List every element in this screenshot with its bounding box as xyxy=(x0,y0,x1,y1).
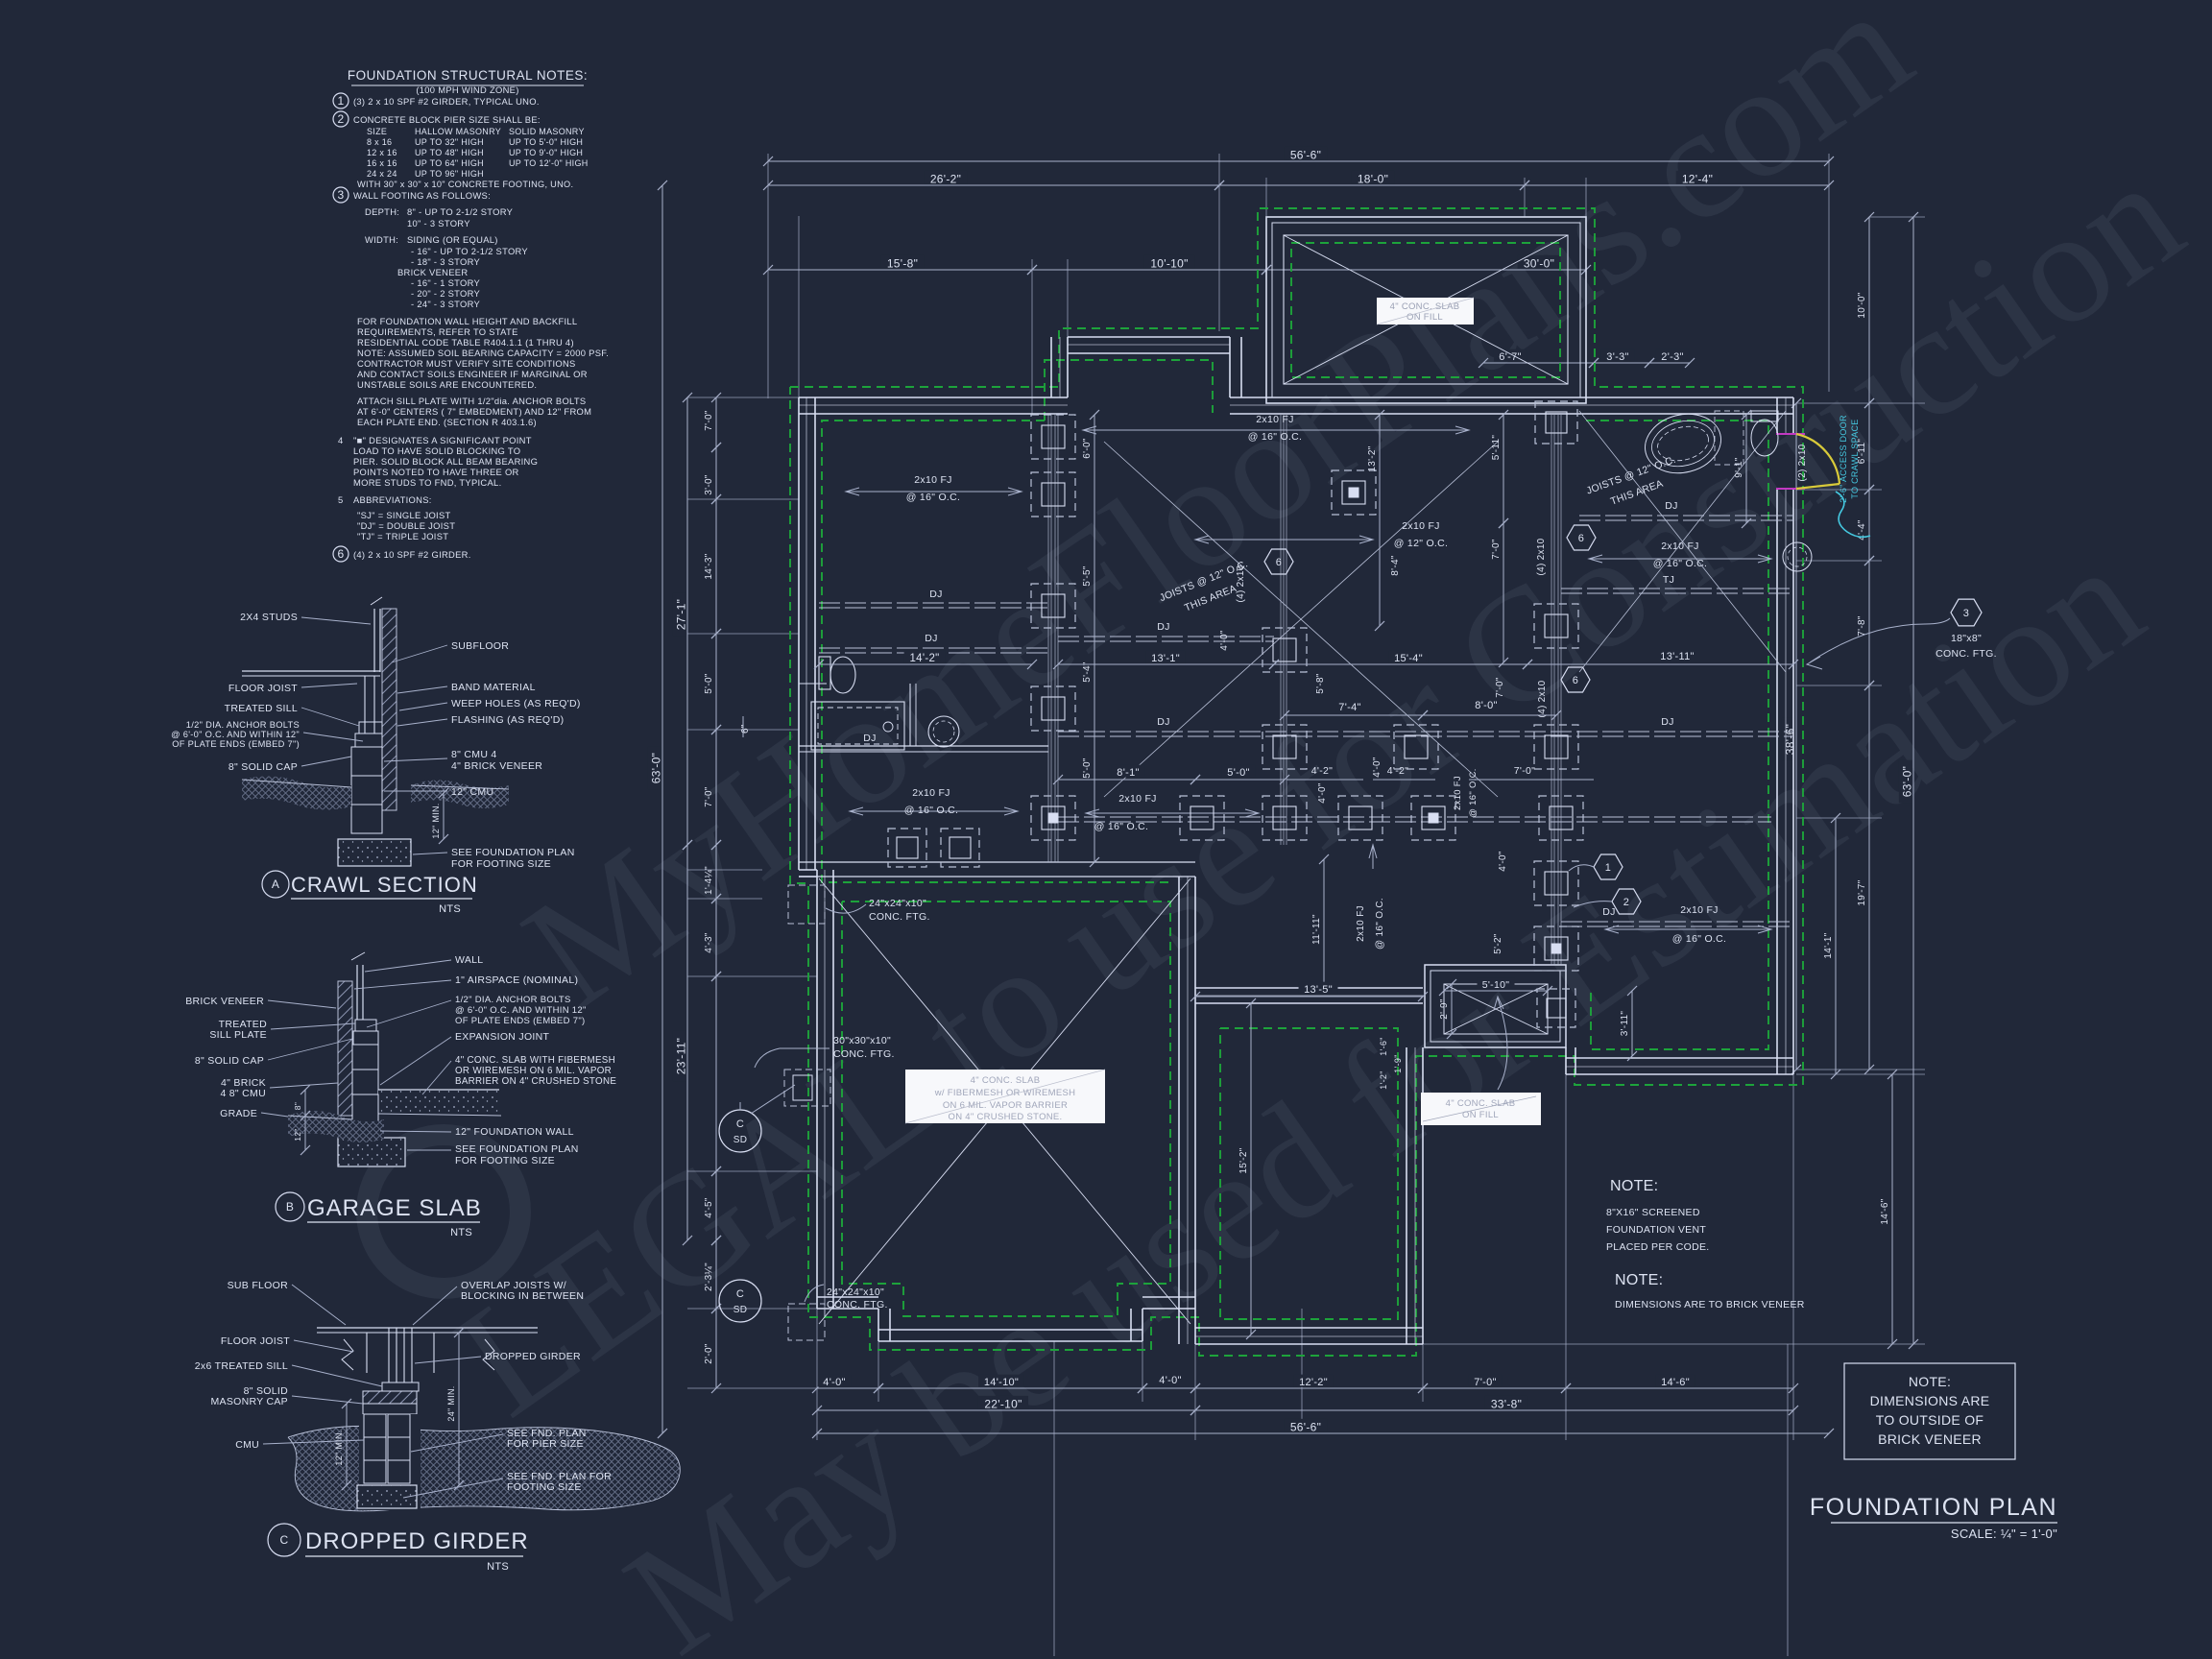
svg-text:1'-4¼": 1'-4¼" xyxy=(703,866,714,895)
svg-text:4" CONC. SLAB: 4" CONC. SLAB xyxy=(971,1075,1041,1086)
svg-text:DIMENSIONS ARE: DIMENSIONS ARE xyxy=(1870,1393,1990,1408)
svg-text:UP TO 12'-0" HIGH: UP TO 12'-0" HIGH xyxy=(509,158,589,168)
svg-text:DJ: DJ xyxy=(1661,716,1673,728)
svg-text:24"x24"x10": 24"x24"x10" xyxy=(827,1286,884,1298)
svg-text:UNSTABLE SOILS ARE ENCOUNTERED: UNSTABLE SOILS ARE ENCOUNTERED. xyxy=(357,379,537,390)
svg-text:UP TO 48" HIGH: UP TO 48" HIGH xyxy=(415,148,484,157)
svg-text:UP TO 96" HIGH: UP TO 96" HIGH xyxy=(415,169,484,179)
svg-text:19'-7": 19'-7" xyxy=(1857,879,1867,905)
svg-text:@ 16" O.C.: @ 16" O.C. xyxy=(1094,821,1148,832)
svg-text:63'-0": 63'-0" xyxy=(649,753,662,783)
svg-text:PLACED PER CODE.: PLACED PER CODE. xyxy=(1606,1241,1710,1253)
svg-text:10'-0": 10'-0" xyxy=(1857,292,1867,318)
svg-text:14'-10": 14'-10" xyxy=(984,1377,1019,1388)
svg-text:2x10 FJ: 2x10 FJ xyxy=(914,474,951,486)
svg-text:MORE STUDS TO FND, TYPICAL.: MORE STUDS TO FND, TYPICAL. xyxy=(353,477,501,488)
svg-text:"■" DESIGNATES A SIGNIFICANT P: "■" DESIGNATES A SIGNIFICANT POINT xyxy=(353,435,532,445)
svg-text:5'-0": 5'-0" xyxy=(1227,767,1249,779)
svg-text:GRADE: GRADE xyxy=(220,1108,257,1119)
svg-text:4'-0": 4'-0" xyxy=(1159,1375,1181,1386)
svg-text:CONC. FTG.: CONC. FTG. xyxy=(869,911,930,923)
svg-text:6: 6 xyxy=(338,547,345,561)
svg-text:SIZE: SIZE xyxy=(367,127,387,136)
svg-text:11'-11": 11'-11" xyxy=(1311,914,1322,945)
svg-text:POINTS NOTED TO HAVE THREE OR: POINTS NOTED TO HAVE THREE OR xyxy=(353,467,519,477)
svg-text:30'-0": 30'-0" xyxy=(1524,256,1554,270)
svg-text:2x10 FJ: 2x10 FJ xyxy=(1118,793,1156,805)
svg-text:5'-0": 5'-0" xyxy=(704,673,714,694)
svg-text:NOTE:: NOTE: xyxy=(1615,1272,1663,1288)
svg-text:14'-6": 14'-6" xyxy=(1880,1198,1890,1224)
svg-text:SUB FLOOR: SUB FLOOR xyxy=(228,1280,288,1291)
svg-text:SD: SD xyxy=(733,1135,748,1145)
svg-text:BRICK VENEER: BRICK VENEER xyxy=(185,996,264,1007)
svg-text:8" SOLID CAP: 8" SOLID CAP xyxy=(228,761,298,773)
svg-text:DJ: DJ xyxy=(1157,716,1169,728)
svg-text:15'-2": 15'-2" xyxy=(1238,1147,1249,1173)
svg-text:4'-0": 4'-0" xyxy=(1317,782,1328,804)
svg-text:2: 2 xyxy=(338,112,345,126)
svg-text:26'-2": 26'-2" xyxy=(930,172,961,185)
svg-text:2x10 FJ: 2x10 FJ xyxy=(1453,776,1463,810)
svg-text:13'-5": 13'-5" xyxy=(1304,984,1333,996)
svg-text:WALL FOOTING AS FOLLOWS:: WALL FOOTING AS FOLLOWS: xyxy=(353,190,491,201)
svg-text:8" CMU 4: 8" CMU 4 xyxy=(451,749,497,760)
svg-text:LOAD TO HAVE SOLID BLOCKING TO: LOAD TO HAVE SOLID BLOCKING TO xyxy=(353,445,520,456)
svg-text:@ 6'-0" O.C. AND WITHIN 12": @ 6'-0" O.C. AND WITHIN 12" xyxy=(171,730,300,739)
svg-text:DJ: DJ xyxy=(1602,906,1615,918)
svg-text:SEE FOUNDATION PLAN: SEE FOUNDATION PLAN xyxy=(451,847,575,858)
svg-text:BARRIER ON 4" CRUSHED STONE: BARRIER ON 4" CRUSHED STONE xyxy=(455,1076,616,1087)
svg-text:1/2" DIA. ANCHOR BOLTS: 1/2" DIA. ANCHOR BOLTS xyxy=(455,995,571,1005)
svg-text:EACH PLATE END. (SECTION R 403: EACH PLATE END. (SECTION R 403.1.6) xyxy=(357,417,537,427)
svg-text:DJ: DJ xyxy=(925,633,937,644)
svg-text:3: 3 xyxy=(338,188,345,202)
svg-text:UP TO 5'-0" HIGH: UP TO 5'-0" HIGH xyxy=(509,137,583,147)
svg-text:NOTE:: NOTE: xyxy=(1610,1178,1658,1194)
svg-text:7'-8": 7'-8" xyxy=(1857,615,1867,637)
svg-text:6: 6 xyxy=(1573,675,1578,686)
svg-text:DROPPED GIRDER: DROPPED GIRDER xyxy=(305,1528,529,1554)
svg-text:5'-8": 5'-8" xyxy=(1315,673,1326,694)
svg-text:1" AIRSPACE (NOMINAL): 1" AIRSPACE (NOMINAL) xyxy=(455,974,578,986)
svg-text:4" CONC. SLAB WITH FIBERMESH: 4" CONC. SLAB WITH FIBERMESH xyxy=(455,1055,615,1066)
svg-text:CONC. FTG.: CONC. FTG. xyxy=(833,1048,895,1060)
svg-text:- 18" - 3 STORY: - 18" - 3 STORY xyxy=(411,256,481,267)
svg-text:OF PLATE ENDS (EMBED 7"): OF PLATE ENDS (EMBED 7") xyxy=(172,739,300,749)
svg-text:C: C xyxy=(736,1288,744,1300)
svg-text:(4) 2x10: (4) 2x10 xyxy=(1236,565,1246,602)
svg-text:2X4 STUDS: 2X4 STUDS xyxy=(240,612,298,623)
svg-text:FLOOR JOIST: FLOOR JOIST xyxy=(228,683,298,694)
svg-text:- 24" - 3 STORY: - 24" - 3 STORY xyxy=(411,299,481,309)
svg-text:4'-0": 4'-0" xyxy=(823,1377,845,1388)
svg-text:7'-0": 7'-0" xyxy=(1495,677,1505,698)
svg-text:1'-2": 1'-2" xyxy=(1379,1070,1388,1089)
svg-text:6: 6 xyxy=(1276,557,1282,568)
svg-text:(2) 2x10: (2) 2x10 xyxy=(1797,444,1808,481)
svg-text:24"x24"x10": 24"x24"x10" xyxy=(869,898,926,909)
svg-text:3'-11": 3'-11" xyxy=(1620,1011,1630,1037)
svg-text:CRAWL SECTION: CRAWL SECTION xyxy=(291,873,478,897)
svg-text:EXPANSION JOINT: EXPANSION JOINT xyxy=(455,1031,550,1043)
svg-text:12'-2": 12'-2" xyxy=(1299,1377,1328,1388)
svg-text:7'-4": 7'-4" xyxy=(1338,702,1360,713)
svg-text:C: C xyxy=(280,1533,289,1547)
svg-text:18'-0": 18'-0" xyxy=(1358,172,1388,185)
svg-text:23'-11": 23'-11" xyxy=(674,1038,687,1074)
svg-text:7'-0": 7'-0" xyxy=(704,410,714,431)
svg-text:A: A xyxy=(272,878,279,891)
svg-text:SEE FOUNDATION PLAN: SEE FOUNDATION PLAN xyxy=(455,1143,579,1155)
svg-text:FOUNDATION VENT: FOUNDATION VENT xyxy=(1606,1224,1706,1236)
svg-text:CONC. FTG.: CONC. FTG. xyxy=(1935,648,1997,660)
svg-text:TO OUTSIDE OF: TO OUTSIDE OF xyxy=(1876,1412,1984,1428)
svg-text:- 16" - 1 STORY: - 16" - 1 STORY xyxy=(411,277,481,288)
svg-text:REQUIREMENTS, REFER TO STATE: REQUIREMENTS, REFER TO STATE xyxy=(357,326,518,337)
svg-text:4'-3": 4'-3" xyxy=(704,932,714,953)
svg-text:PIER. SOLID BLOCK ALL BEAM BEA: PIER. SOLID BLOCK ALL BEAM BEARING xyxy=(353,456,538,467)
svg-text:4'-2": 4'-2" xyxy=(1387,765,1408,777)
svg-text:CONCRETE BLOCK PIER SIZE SHALL: CONCRETE BLOCK PIER SIZE SHALL BE: xyxy=(353,114,541,125)
svg-text:DJ: DJ xyxy=(1157,621,1169,633)
svg-text:8"X16" SCREENED: 8"X16" SCREENED xyxy=(1606,1207,1700,1218)
svg-text:BAND MATERIAL: BAND MATERIAL xyxy=(451,682,536,693)
svg-text:56'-6": 56'-6" xyxy=(1290,1420,1321,1433)
svg-text:3'-0": 3'-0" xyxy=(704,474,714,495)
svg-text:3: 3 xyxy=(1963,608,1969,619)
svg-text:15'-8": 15'-8" xyxy=(887,256,918,270)
svg-text:27'-1": 27'-1" xyxy=(674,599,687,630)
svg-text:@ 16" O.C.: @ 16" O.C. xyxy=(1468,768,1479,817)
svg-text:(4) 2x10: (4) 2x10 xyxy=(1537,680,1548,717)
svg-text:12'-4": 12'-4" xyxy=(1682,172,1713,185)
svg-text:@ 16" O.C.: @ 16" O.C. xyxy=(906,492,960,503)
svg-text:5'-2": 5'-2" xyxy=(1493,933,1503,954)
svg-text:CONTRACTOR MUST VERIFY SITE CO: CONTRACTOR MUST VERIFY SITE CONDITIONS xyxy=(357,358,576,369)
svg-text:GARAGE SLAB: GARAGE SLAB xyxy=(307,1195,482,1221)
svg-text:@ 12" O.C.: @ 12" O.C. xyxy=(1394,538,1448,549)
svg-text:DROPPED GIRDER: DROPPED GIRDER xyxy=(485,1351,581,1362)
svg-text:2x10 FJ: 2x10 FJ xyxy=(1680,904,1718,916)
svg-text:"DJ" = DOUBLE JOIST: "DJ" = DOUBLE JOIST xyxy=(357,520,455,531)
svg-text:8'-1": 8'-1" xyxy=(1117,767,1139,779)
svg-text:14'-6": 14'-6" xyxy=(1661,1377,1690,1388)
svg-text:WEEP HOLES (AS REQ'D): WEEP HOLES (AS REQ'D) xyxy=(451,698,581,709)
svg-text:12": 12" xyxy=(293,1128,302,1141)
svg-text:33'-8": 33'-8" xyxy=(1491,1397,1522,1410)
svg-text:ON FILL: ON FILL xyxy=(1407,312,1443,323)
svg-text:4 8" CMU: 4 8" CMU xyxy=(220,1088,266,1099)
svg-text:2: 2 xyxy=(1623,897,1629,908)
svg-text:2'-9": 2'-9" xyxy=(1439,998,1450,1020)
svg-text:NTS: NTS xyxy=(487,1561,509,1573)
svg-text:FOR FOOTING SIZE: FOR FOOTING SIZE xyxy=(455,1155,555,1166)
svg-text:OF PLATE ENDS (EMBED 7"): OF PLATE ENDS (EMBED 7") xyxy=(455,1016,586,1026)
svg-text:FOUNDATION STRUCTURAL NOTES:: FOUNDATION STRUCTURAL NOTES: xyxy=(348,68,588,83)
svg-text:SOLID MASONRY: SOLID MASONRY xyxy=(509,127,585,136)
svg-text:FLASHING (AS REQ'D): FLASHING (AS REQ'D) xyxy=(451,714,564,726)
svg-text:12" MIN.: 12" MIN. xyxy=(431,803,441,838)
svg-text:WALL: WALL xyxy=(455,954,483,966)
svg-text:WITH 30" x 30" x 10" CONCRETE: WITH 30" x 30" x 10" CONCRETE FOOTING, U… xyxy=(357,180,573,189)
svg-text:8" SOLID CAP: 8" SOLID CAP xyxy=(195,1055,264,1067)
svg-text:1: 1 xyxy=(1605,862,1611,874)
svg-text:"TJ" = TRIPLE JOIST: "TJ" = TRIPLE JOIST xyxy=(357,531,448,541)
svg-text:(100 MPH WIND ZONE): (100 MPH WIND ZONE) xyxy=(416,84,518,95)
svg-text:C: C xyxy=(736,1118,744,1130)
svg-text:@ 6'-0" O.C. AND WITHIN 12": @ 6'-0" O.C. AND WITHIN 12" xyxy=(455,1005,587,1016)
svg-text:AT 6'-0" CENTERS ( 7" EMBEDMEN: AT 6'-0" CENTERS ( 7" EMBEDMENT) AND 12"… xyxy=(357,406,591,417)
svg-text:NTS: NTS xyxy=(450,1227,472,1238)
svg-text:1: 1 xyxy=(338,94,345,108)
svg-text:2'-0": 2'-0" xyxy=(704,1343,714,1364)
svg-text:FOR FOOTING SIZE: FOR FOOTING SIZE xyxy=(451,858,551,870)
svg-text:1'-9": 1'-9" xyxy=(1393,1054,1403,1072)
svg-text:4: 4 xyxy=(338,435,344,445)
svg-text:ON 6 MIL. VAPOR BARRIER: ON 6 MIL. VAPOR BARRIER xyxy=(943,1100,1068,1111)
svg-text:7'-0": 7'-0" xyxy=(1474,1377,1496,1388)
svg-text:NOTE:: NOTE: xyxy=(1909,1374,1951,1389)
svg-text:(4) 2x10: (4) 2x10 xyxy=(1536,538,1547,575)
svg-text:7'-0": 7'-0" xyxy=(1514,765,1535,777)
svg-text:DIMENSIONS ARE TO BRICK VENEER: DIMENSIONS ARE TO BRICK VENEER xyxy=(1615,1299,1805,1310)
svg-text:12" CMU: 12" CMU xyxy=(451,786,493,798)
svg-text:5'-0": 5'-0" xyxy=(1082,757,1093,779)
svg-text:SD: SD xyxy=(733,1305,748,1315)
svg-text:8'-4": 8'-4" xyxy=(1390,555,1401,576)
svg-text:RESIDENTIAL CODE TABLE R404.1.: RESIDENTIAL CODE TABLE R404.1.1 (1 THRU … xyxy=(357,337,574,348)
svg-text:1/2" DIA. ANCHOR BOLTS: 1/2" DIA. ANCHOR BOLTS xyxy=(186,720,300,730)
svg-text:13'-11": 13'-11" xyxy=(1660,651,1694,662)
svg-text:@ 16" O.C.: @ 16" O.C. xyxy=(1248,431,1302,443)
svg-text:24 x 24: 24 x 24 xyxy=(367,169,397,179)
svg-text:2x6 TREATED SILL: 2x6 TREATED SILL xyxy=(195,1360,288,1372)
svg-text:6": 6" xyxy=(740,724,751,733)
svg-text:14'-1": 14'-1" xyxy=(1823,932,1834,958)
svg-text:14'-2": 14'-2" xyxy=(909,653,939,664)
svg-text:24" MIN.: 24" MIN. xyxy=(446,1385,456,1421)
svg-text:@ 16" O.C.: @ 16" O.C. xyxy=(904,805,958,816)
svg-text:4'-2": 4'-2" xyxy=(1311,765,1333,777)
svg-text:6: 6 xyxy=(1578,533,1584,544)
svg-text:FOR PIER SIZE: FOR PIER SIZE xyxy=(507,1438,584,1450)
svg-text:4" CONC. SLAB: 4" CONC. SLAB xyxy=(1390,301,1460,312)
svg-text:56'-6": 56'-6" xyxy=(1290,148,1321,161)
svg-text:5'-10": 5'-10" xyxy=(1482,979,1510,991)
svg-text:HALLOW MASONRY: HALLOW MASONRY xyxy=(415,127,501,136)
svg-text:5: 5 xyxy=(338,494,344,505)
svg-text:14'-3": 14'-3" xyxy=(704,553,714,579)
svg-text:SUBFLOOR: SUBFLOOR xyxy=(451,640,509,652)
svg-text:OR WIREMESH ON 6 MIL. VAPOR: OR WIREMESH ON 6 MIL. VAPOR xyxy=(455,1066,612,1076)
svg-text:2x10 FJ: 2x10 FJ xyxy=(1402,520,1439,532)
svg-text:7'-0": 7'-0" xyxy=(1491,539,1502,560)
svg-text:63'-0": 63'-0" xyxy=(1900,766,1913,797)
svg-text:TREATED SILL: TREATED SILL xyxy=(225,703,298,714)
svg-text:2x10 FJ: 2x10 FJ xyxy=(1356,905,1366,942)
svg-text:16 x 16: 16 x 16 xyxy=(367,158,397,168)
svg-text:13'-2": 13'-2" xyxy=(1367,445,1378,471)
svg-text:FLOOR JOIST: FLOOR JOIST xyxy=(221,1335,290,1347)
svg-text:FOUNDATION PLAN: FOUNDATION PLAN xyxy=(1810,1494,2057,1521)
svg-text:13'-1": 13'-1" xyxy=(1151,653,1180,664)
svg-text:4'-5": 4'-5" xyxy=(704,1197,714,1218)
svg-text:5'-5": 5'-5" xyxy=(1082,565,1093,587)
svg-text:DJ: DJ xyxy=(929,589,942,600)
svg-text:6'-7": 6'-7" xyxy=(1499,351,1521,363)
svg-text:4" BRICK VENEER: 4" BRICK VENEER xyxy=(451,760,542,772)
svg-text:UP TO 9'-0" HIGH: UP TO 9'-0" HIGH xyxy=(509,148,583,157)
svg-text:2x10 FJ: 2x10 FJ xyxy=(1256,414,1293,425)
svg-text:2'-6" ACCESS DOOR: 2'-6" ACCESS DOOR xyxy=(1839,415,1848,503)
svg-text:BRICK VENEER: BRICK VENEER xyxy=(397,267,468,277)
svg-text:4'-0": 4'-0" xyxy=(1219,630,1230,651)
svg-text:8" - UP TO 2-1/2 STORY: 8" - UP TO 2-1/2 STORY xyxy=(407,206,514,217)
svg-text:CONC. FTG.: CONC. FTG. xyxy=(827,1299,888,1310)
svg-text:"SJ" = SINGLE JOIST: "SJ" = SINGLE JOIST xyxy=(357,510,451,520)
svg-text:3'-3": 3'-3" xyxy=(1606,351,1628,363)
svg-text:NTS: NTS xyxy=(439,903,461,915)
svg-text:- 16" - UP TO 2-1/2 STORY: - 16" - UP TO 2-1/2 STORY xyxy=(411,246,528,256)
svg-text:NOTE: ASSUMED SOIL BEARING CAP: NOTE: ASSUMED SOIL BEARING CAPACITY = 20… xyxy=(357,348,609,358)
svg-text:12 x 16: 12 x 16 xyxy=(367,148,397,157)
svg-text:FOOTING SIZE: FOOTING SIZE xyxy=(507,1481,582,1493)
svg-text:DJ: DJ xyxy=(1665,500,1677,512)
svg-text:12" FOUNDATION WALL: 12" FOUNDATION WALL xyxy=(455,1126,574,1138)
svg-text:6'-0": 6'-0" xyxy=(1082,438,1093,459)
svg-text:8'-0": 8'-0" xyxy=(1475,700,1497,711)
svg-text:@ 16" O.C.: @ 16" O.C. xyxy=(1653,558,1707,569)
svg-text:8": 8" xyxy=(293,1102,302,1110)
svg-text:WIDTH:: WIDTH: xyxy=(365,234,398,245)
svg-text:TO CRAWL SPACE: TO CRAWL SPACE xyxy=(1850,419,1860,498)
svg-text:ABBREVIATIONS:: ABBREVIATIONS: xyxy=(353,494,432,505)
svg-text:30"x30"x10": 30"x30"x10" xyxy=(833,1035,891,1046)
svg-text:9'-1": 9'-1" xyxy=(1734,457,1744,478)
svg-text:8 x 16: 8 x 16 xyxy=(367,137,392,147)
svg-text:SILL PLATE: SILL PLATE xyxy=(209,1029,267,1041)
svg-text:4'-0": 4'-0" xyxy=(1498,851,1508,872)
svg-text:2'-3¼": 2'-3¼" xyxy=(703,1262,714,1291)
svg-text:18"x8": 18"x8" xyxy=(1951,633,1982,644)
svg-text:SIDING (OR EQUAL): SIDING (OR EQUAL) xyxy=(407,234,498,245)
svg-text:DJ: DJ xyxy=(863,733,876,744)
svg-text:BLOCKING IN BETWEEN: BLOCKING IN BETWEEN xyxy=(461,1290,584,1302)
svg-text:22'-10": 22'-10" xyxy=(984,1397,1022,1410)
svg-text:CMU: CMU xyxy=(235,1439,259,1451)
svg-text:ON 4" CRUSHED STONE.: ON 4" CRUSHED STONE. xyxy=(949,1112,1063,1122)
svg-text:- 20" - 2 STORY: - 20" - 2 STORY xyxy=(411,288,481,299)
svg-text:AND CONTACT SOILS ENGINEER IF: AND CONTACT SOILS ENGINEER IF MARGINAL O… xyxy=(357,369,588,379)
svg-text:UP TO 32" HIGH: UP TO 32" HIGH xyxy=(415,137,484,147)
svg-text:7'-0": 7'-0" xyxy=(704,786,714,807)
svg-text:@ 16" O.C.: @ 16" O.C. xyxy=(1375,898,1385,950)
svg-text:10" - 3 STORY: 10" - 3 STORY xyxy=(407,218,470,228)
svg-text:ATTACH SILL PLATE WITH 1/2"dia: ATTACH SILL PLATE WITH 1/2"dia. ANCHOR B… xyxy=(357,396,586,406)
svg-text:2x10 FJ: 2x10 FJ xyxy=(912,787,950,799)
svg-text:(3) 2 x 10 SPF #2 GIRDER, TYPI: (3) 2 x 10 SPF #2 GIRDER, TYPICAL UNO. xyxy=(353,96,540,107)
svg-text:TJ: TJ xyxy=(1663,574,1674,586)
svg-text:@ 16" O.C.: @ 16" O.C. xyxy=(1672,933,1726,945)
svg-text:SCALE: ¼" = 1'-0": SCALE: ¼" = 1'-0" xyxy=(1951,1527,2057,1541)
svg-text:MASONRY CAP: MASONRY CAP xyxy=(210,1396,288,1407)
svg-text:BRICK VENEER: BRICK VENEER xyxy=(1878,1431,1982,1447)
svg-text:4'-0": 4'-0" xyxy=(1372,757,1382,778)
svg-text:12" MIN.: 12" MIN. xyxy=(334,1430,344,1465)
svg-text:38'-6": 38'-6" xyxy=(1783,724,1796,755)
svg-text:FOR FOUNDATION WALL HEIGHT AND: FOR FOUNDATION WALL HEIGHT AND BACKFILL xyxy=(357,316,577,326)
svg-text:B: B xyxy=(286,1200,294,1214)
svg-text:(4) 2 x 10 SPF #2 GIRDER.: (4) 2 x 10 SPF #2 GIRDER. xyxy=(353,549,471,560)
svg-text:2x10 FJ: 2x10 FJ xyxy=(1661,541,1698,552)
svg-text:5'-11": 5'-11" xyxy=(1491,435,1502,461)
svg-text:15'-4": 15'-4" xyxy=(1394,653,1423,664)
svg-text:UP TO 64" HIGH: UP TO 64" HIGH xyxy=(415,158,484,168)
svg-text:10'-10": 10'-10" xyxy=(1150,256,1188,270)
svg-text:1'-6": 1'-6" xyxy=(1379,1037,1388,1055)
svg-text:DEPTH:: DEPTH: xyxy=(365,206,399,217)
svg-text:2'-3": 2'-3" xyxy=(1661,351,1683,363)
